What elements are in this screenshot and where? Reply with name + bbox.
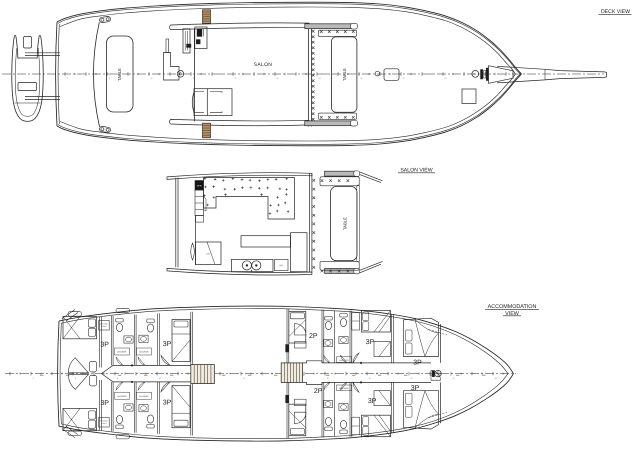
- svg-text:3P: 3P: [163, 400, 172, 407]
- svg-text:4: 4: [33, 377, 34, 380]
- svg-text:24: 24: [452, 377, 454, 380]
- svg-text:22: 22: [402, 77, 404, 80]
- svg-text:3P: 3P: [100, 400, 109, 407]
- svg-text:22: 22: [410, 377, 412, 380]
- svg-text:20: 20: [368, 377, 370, 380]
- svg-text:3P: 3P: [368, 398, 377, 405]
- svg-text:14: 14: [242, 377, 244, 380]
- svg-text:DN: DN: [206, 253, 210, 256]
- svg-text:26: 26: [494, 377, 496, 380]
- svg-text:TABLE: TABLE: [101, 422, 107, 425]
- svg-text:B.KONER: B.KONER: [139, 395, 149, 398]
- svg-text:3P: 3P: [366, 339, 375, 346]
- svg-text:6: 6: [67, 77, 68, 80]
- svg-text:18: 18: [326, 377, 328, 380]
- svg-text:6: 6: [75, 377, 76, 380]
- svg-text:TABLE: TABLE: [343, 217, 348, 230]
- svg-text:TABLE: TABLE: [101, 325, 107, 328]
- svg-text:3P: 3P: [163, 341, 172, 348]
- svg-text:SINK: SINK: [279, 264, 284, 267]
- svg-text:2P: 2P: [309, 333, 318, 340]
- svg-text:B.KONER: B.KONER: [139, 351, 149, 354]
- svg-text:GFR: GFR: [197, 185, 202, 188]
- svg-text:14: 14: [234, 77, 236, 80]
- svg-text:B.KONER: B.KONER: [117, 351, 127, 354]
- svg-text:B.KONER: B.KONER: [117, 395, 127, 398]
- svg-text:SALON: SALON: [254, 62, 273, 68]
- svg-text:2P: 2P: [314, 388, 323, 395]
- svg-text:3P: 3P: [100, 341, 109, 348]
- svg-text:24: 24: [444, 77, 446, 80]
- svg-text:10: 10: [150, 77, 152, 80]
- svg-text:8: 8: [109, 77, 110, 80]
- svg-text:TABLE: TABLE: [342, 68, 347, 81]
- svg-text:3P: 3P: [413, 359, 422, 366]
- svg-text:8: 8: [117, 377, 118, 380]
- svg-text:18: 18: [318, 77, 320, 80]
- svg-text:10: 10: [158, 377, 160, 380]
- svg-text:TABLE: TABLE: [117, 68, 122, 81]
- svg-text:20: 20: [360, 77, 362, 80]
- svg-text:16: 16: [276, 77, 278, 80]
- svg-text:3P: 3P: [411, 385, 420, 392]
